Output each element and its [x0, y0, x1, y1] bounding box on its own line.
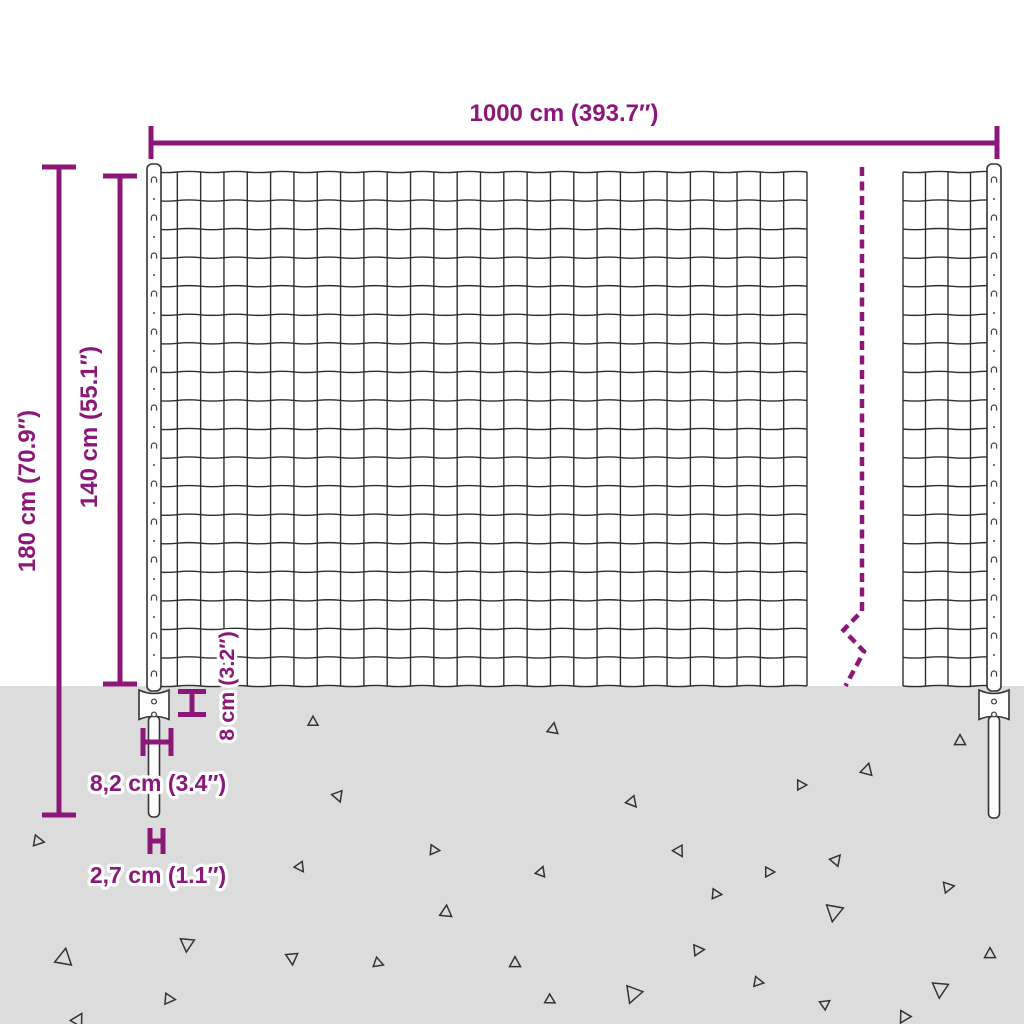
plate-hole — [992, 699, 997, 704]
mesh-wire-horizontal — [154, 286, 807, 287]
plate-hole — [992, 712, 997, 717]
mesh-wire-horizontal — [154, 314, 807, 315]
post-rivet-dot — [153, 198, 155, 200]
post-rivet-dot — [993, 426, 995, 428]
mesh-wire-horizontal — [903, 657, 999, 658]
post-rivet-dot — [993, 578, 995, 580]
post-rivet-dot — [993, 502, 995, 504]
mesh-wire-horizontal — [903, 343, 999, 344]
post-rivet-dot — [153, 578, 155, 580]
mesh-wire-horizontal — [903, 428, 999, 429]
post-left-spike — [149, 716, 160, 817]
post-rivet-dot — [993, 616, 995, 618]
post-rivet-dot — [153, 426, 155, 428]
mesh-wire-horizontal — [903, 371, 999, 372]
total-height-label: 180 cm (70.9″) — [14, 410, 41, 572]
mesh-wire-horizontal — [154, 628, 807, 629]
post-rivet-dot — [153, 312, 155, 314]
mesh-wire-horizontal — [154, 486, 807, 487]
post-rivet-dot — [993, 312, 995, 314]
fence-dimension-diagram: 1000 cm (393.7″) 180 cm (70.9″) 140 cm (… — [0, 0, 1024, 1024]
post-rivet-dot — [993, 654, 995, 656]
dimension-width — [151, 126, 997, 159]
post-rivet-dot — [993, 350, 995, 352]
diagram-canvas: 1000 cm (393.7″) 180 cm (70.9″) 140 cm (… — [0, 0, 1024, 1024]
mesh-wire-horizontal — [154, 229, 807, 230]
post-rivet-dot — [153, 388, 155, 390]
mesh-wire-horizontal — [154, 257, 807, 258]
mesh-wire-horizontal — [903, 486, 999, 487]
post-rivet-dot — [993, 198, 995, 200]
mesh-wire-horizontal — [903, 400, 999, 401]
post-rivet-dot — [153, 236, 155, 238]
mesh-wire-horizontal — [154, 571, 807, 572]
mesh-wire-horizontal — [903, 229, 999, 230]
mesh-wire-horizontal — [154, 428, 807, 429]
plate-hole — [152, 699, 157, 704]
mesh-height-label: 140 cm (55.1″) — [76, 346, 103, 508]
post-rivet-dot — [153, 464, 155, 466]
mesh-wire-horizontal — [903, 200, 999, 201]
post-rivet-dot — [993, 464, 995, 466]
plate-hole — [152, 712, 157, 717]
mesh-wire-horizontal — [154, 343, 807, 344]
post-rivet-dot — [993, 274, 995, 276]
mesh-wire-horizontal — [154, 600, 807, 601]
post-rivet-dot — [153, 654, 155, 656]
mesh-wire-horizontal — [903, 543, 999, 544]
mesh-wire-horizontal — [154, 371, 807, 372]
post-rivet-dot — [993, 236, 995, 238]
post-rivet-dot — [153, 274, 155, 276]
mesh-wire-horizontal — [154, 171, 807, 172]
mesh-wire-horizontal — [154, 543, 807, 544]
mesh-panel-main — [154, 171, 807, 686]
mesh-panel-right — [903, 171, 999, 686]
post-rivet-dot — [993, 388, 995, 390]
mesh-wire-horizontal — [903, 571, 999, 572]
mesh-wire-horizontal — [154, 514, 807, 515]
mesh-wire-horizontal — [903, 257, 999, 258]
mesh-wire-horizontal — [903, 286, 999, 287]
mesh-wire-horizontal — [154, 457, 807, 458]
mesh-wire-horizontal — [903, 600, 999, 601]
mesh-wire-horizontal — [154, 400, 807, 401]
mesh-wire-horizontal — [903, 171, 999, 172]
mesh-wire-horizontal — [903, 314, 999, 315]
mesh-wire-horizontal — [903, 457, 999, 458]
mesh-wire-horizontal — [903, 514, 999, 515]
width-label: 1000 cm (393.7″) — [470, 100, 659, 127]
anchor-depth-label: 8 cm (3.2″) — [215, 631, 239, 740]
break-line — [844, 167, 865, 686]
anchor-width-label: 8,2 cm (3.4″) — [90, 770, 226, 796]
post-rivet-dot — [153, 540, 155, 542]
mesh-wire-horizontal — [154, 657, 807, 658]
mesh-wire-horizontal — [903, 628, 999, 629]
post-rivet-dot — [993, 540, 995, 542]
post-rivet-dot — [153, 616, 155, 618]
post-right-spike — [989, 716, 1000, 818]
mesh-wire-horizontal — [154, 200, 807, 201]
dimension-mesh-height — [103, 176, 137, 684]
spike-width-label: 2,7 cm (1.1″) — [90, 862, 226, 888]
post-rivet-dot — [153, 502, 155, 504]
post-rivet-dot — [153, 350, 155, 352]
